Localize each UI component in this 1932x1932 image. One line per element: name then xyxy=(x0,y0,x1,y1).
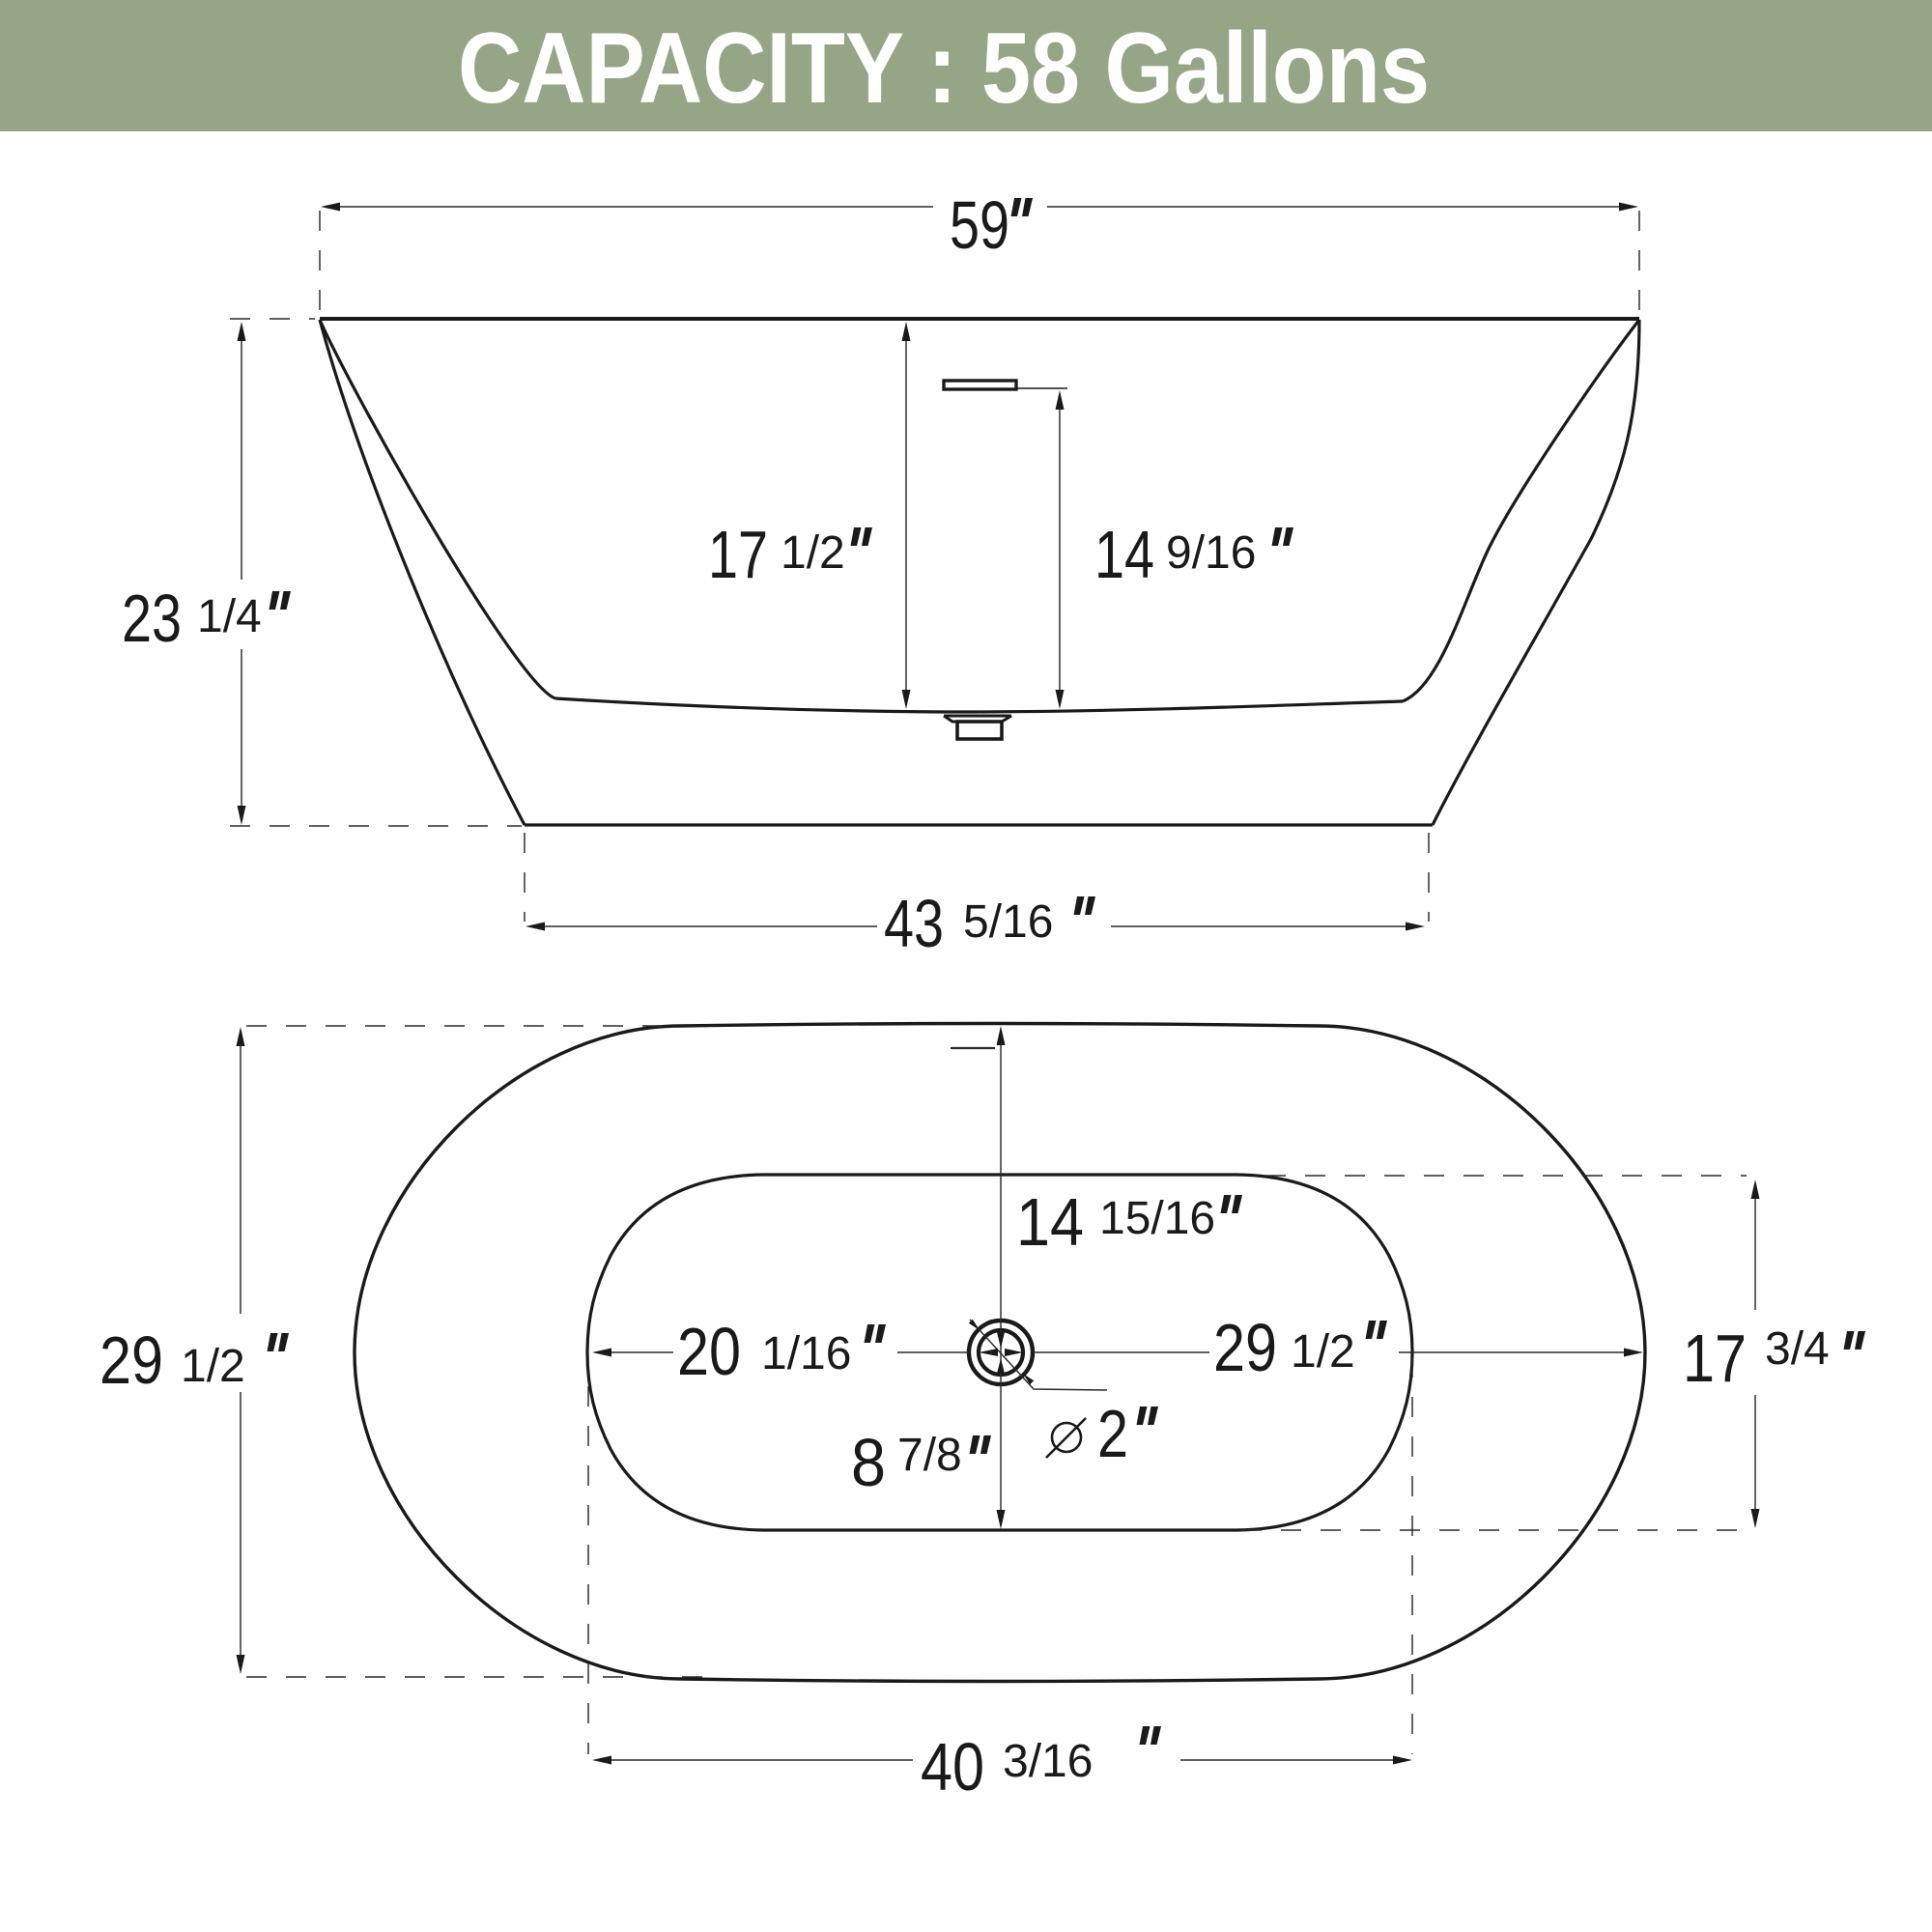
svg-text:2: 2 xyxy=(1097,1396,1128,1471)
svg-text:9/16: 9/16 xyxy=(1166,527,1256,579)
svg-text:14: 14 xyxy=(1016,1184,1084,1260)
svg-text:29: 29 xyxy=(99,1322,163,1398)
svg-text:43: 43 xyxy=(884,886,944,961)
svg-text:17: 17 xyxy=(708,517,768,592)
svg-text:17: 17 xyxy=(1683,1321,1747,1396)
svg-text:14: 14 xyxy=(1094,517,1154,592)
svg-text:23: 23 xyxy=(122,581,182,656)
svg-text:3/4: 3/4 xyxy=(1765,1323,1830,1375)
svg-text:15/16: 15/16 xyxy=(1099,1193,1215,1244)
svg-text:3/16: 3/16 xyxy=(1003,1736,1093,1787)
svg-text:29: 29 xyxy=(1213,1310,1277,1385)
svg-text:1/2: 1/2 xyxy=(181,1341,245,1392)
svg-text:5/16: 5/16 xyxy=(963,896,1053,948)
svg-text:8: 8 xyxy=(851,1425,886,1500)
svg-text:7/8: 7/8 xyxy=(897,1430,962,1481)
svg-text:40: 40 xyxy=(921,1729,984,1804)
svg-text:1/16: 1/16 xyxy=(761,1328,851,1379)
svg-text:CAPACITY : 58 Gallons: CAPACITY : 58 Gallons xyxy=(458,13,1430,125)
svg-text:1/2: 1/2 xyxy=(1291,1326,1355,1378)
svg-text:1/2: 1/2 xyxy=(781,527,845,579)
svg-text:1/4: 1/4 xyxy=(197,591,262,642)
svg-text:20: 20 xyxy=(677,1314,741,1389)
svg-text:59: 59 xyxy=(950,187,1009,263)
